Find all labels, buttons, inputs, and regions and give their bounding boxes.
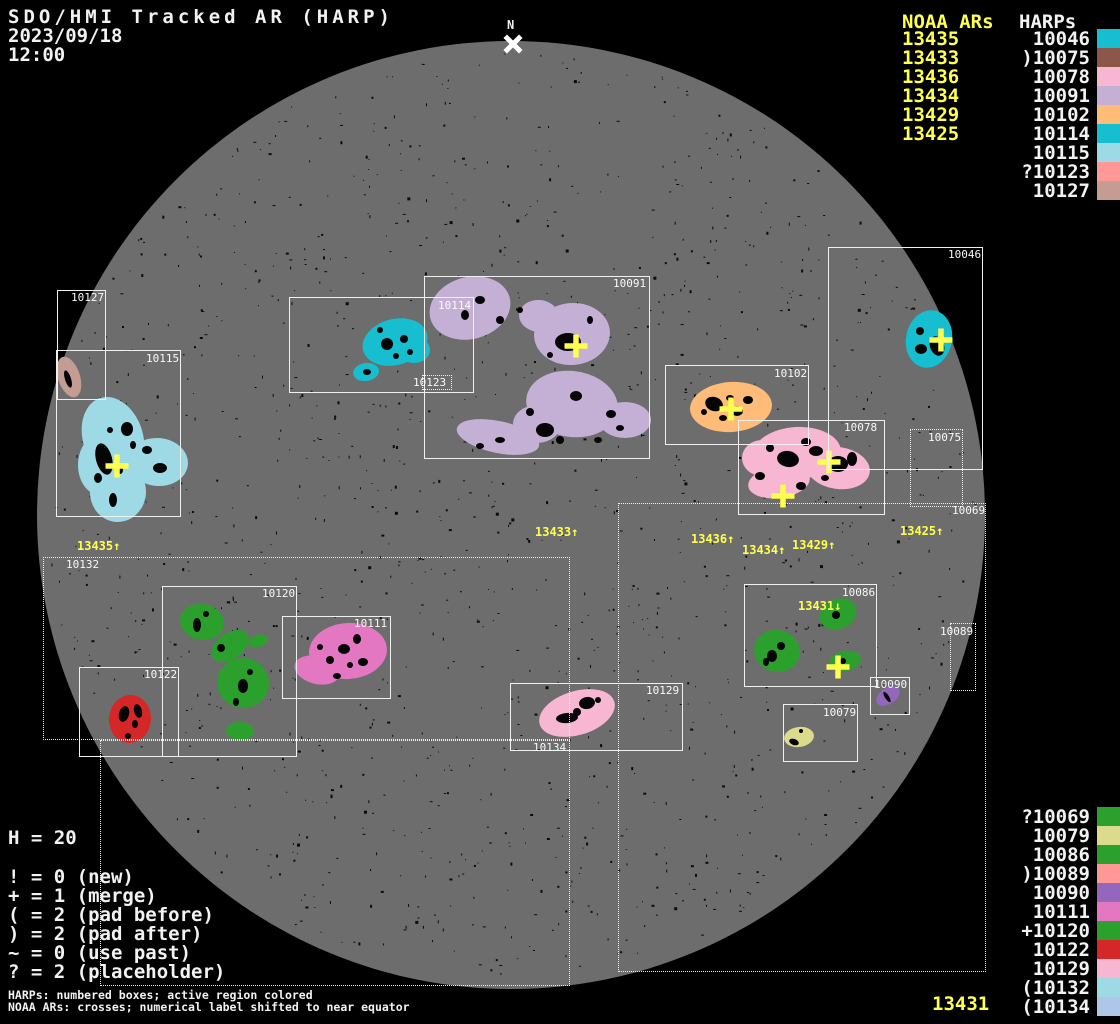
harp-box-label-10115: 10115 [146,353,179,365]
noaa-equator-label: 13434↑ [742,544,785,556]
harp-color-swatch [1097,29,1120,48]
harp-box-label-10134: 10134 [533,742,566,754]
harp-color-swatch [1097,997,1120,1016]
harp-color-swatch [1097,807,1120,826]
harp-color-swatch [1097,826,1120,845]
harp-color-swatch [1097,845,1120,864]
noaa-equator-label: 13436↑ [691,533,734,545]
harp-color-swatch [1097,67,1120,86]
harp-color-swatch [1097,978,1120,997]
harp-color-swatch [1097,86,1120,105]
noaa-equator-label: 13429↑ [792,539,835,551]
harp-box-label-10079: 10079 [823,707,856,719]
harp-box-label-10111: 10111 [354,618,387,630]
harp-box-label-10120: 10120 [262,588,295,600]
harp-color-swatch [1097,959,1120,978]
harp-box-label-10089: 10089 [940,626,973,638]
harp-color-swatch [1097,940,1120,959]
harp-box-label-10069: 10069 [952,505,985,517]
noaa-equator-label: 13425↑ [900,525,943,537]
legend-row: ? = 2 (placeholder) [8,963,225,982]
harp-box-label-10102: 10102 [774,368,807,380]
harp-box-label-10078: 10078 [844,422,877,434]
harp-box-label-10086: 10086 [842,587,875,599]
harp-color-swatch [1097,162,1120,181]
harp-box-label-10090: 10090 [874,679,907,691]
harp-box-label-10046: 10046 [948,249,981,261]
noaa-equator-label: 13433↑ [535,526,578,538]
harp-box-10127 [57,290,106,400]
harp-color-swatch [1097,143,1120,162]
harp-box-10132 [43,557,570,740]
harp-color-swatch [1097,105,1120,124]
harp-figure: 1004610075100781009110102101141011510123… [0,0,1120,1024]
figure-time: 12:00 [8,46,65,65]
harp-color-swatch [1097,902,1120,921]
footnote-noaa: NOAA ARs: crosses; numerical label shift… [8,1001,410,1013]
harp-list-item: (10134 [1021,998,1090,1017]
harp-box-label-10123: 10123 [413,377,446,389]
harp-box-label-10132: 10132 [66,559,99,571]
noaa-equator-label: 13435↑ [77,540,120,552]
north-label: N [507,19,514,31]
harp-box-label-10122: 10122 [144,669,177,681]
noaa-equator-label: 13431↓ [798,600,841,612]
harp-color-swatch [1097,181,1120,200]
harp-box-label-10114: 10114 [438,300,471,312]
noaa-list-item: 13425 [902,125,959,144]
harp-color-swatch [1097,921,1120,940]
harp-color-swatch [1097,48,1120,67]
harp-box-label-10129: 10129 [646,685,679,697]
harp-color-swatch [1097,883,1120,902]
harp-count: H = 20 [8,829,77,848]
harp-color-swatch [1097,864,1120,883]
harp-box-label-10075: 10075 [928,432,961,444]
harp-box-label-10127: 10127 [71,292,104,304]
harp-box-label-10091: 10091 [613,278,646,290]
harp-color-swatch [1097,124,1120,143]
harp-list-item: 10127 [1033,182,1090,201]
bottom-right-noaa-number: 13431 [932,995,989,1014]
